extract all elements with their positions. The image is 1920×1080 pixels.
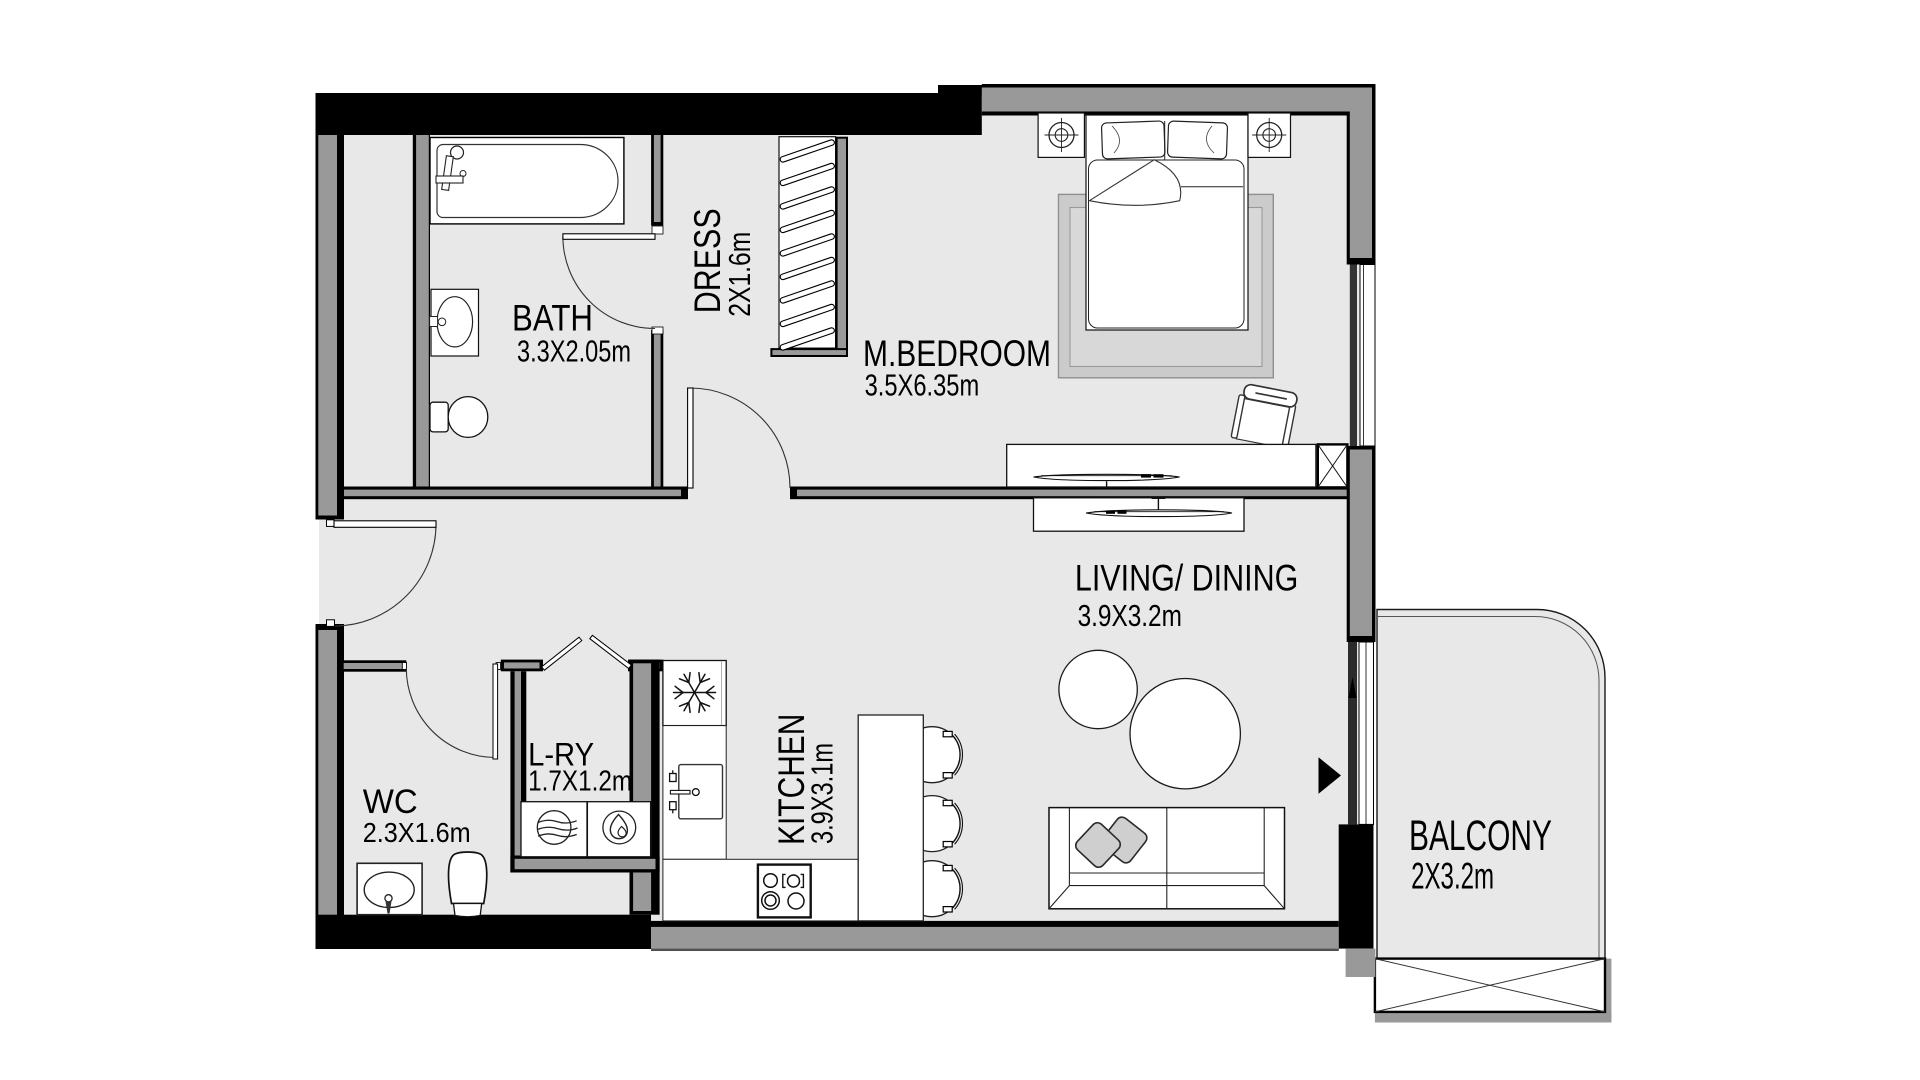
svg-text:2X1.6m: 2X1.6m bbox=[722, 232, 757, 317]
svg-text:WC: WC bbox=[363, 783, 418, 821]
svg-text:2X3.2m: 2X3.2m bbox=[1411, 855, 1494, 896]
svg-text:BALCONY: BALCONY bbox=[1409, 812, 1552, 860]
svg-text:3.9X3.2m: 3.9X3.2m bbox=[1078, 598, 1182, 633]
svg-text:1.7X1.2m: 1.7X1.2m bbox=[528, 766, 632, 798]
svg-text:3.9X3.1m: 3.9X3.1m bbox=[805, 743, 840, 844]
svg-text:LIVING/ DINING: LIVING/ DINING bbox=[1075, 558, 1298, 599]
svg-text:2.3X1.6m: 2.3X1.6m bbox=[363, 817, 471, 848]
svg-text:BATH: BATH bbox=[512, 298, 593, 339]
svg-text:3.5X6.35m: 3.5X6.35m bbox=[865, 367, 980, 402]
svg-text:3.3X2.05m: 3.3X2.05m bbox=[517, 334, 631, 369]
